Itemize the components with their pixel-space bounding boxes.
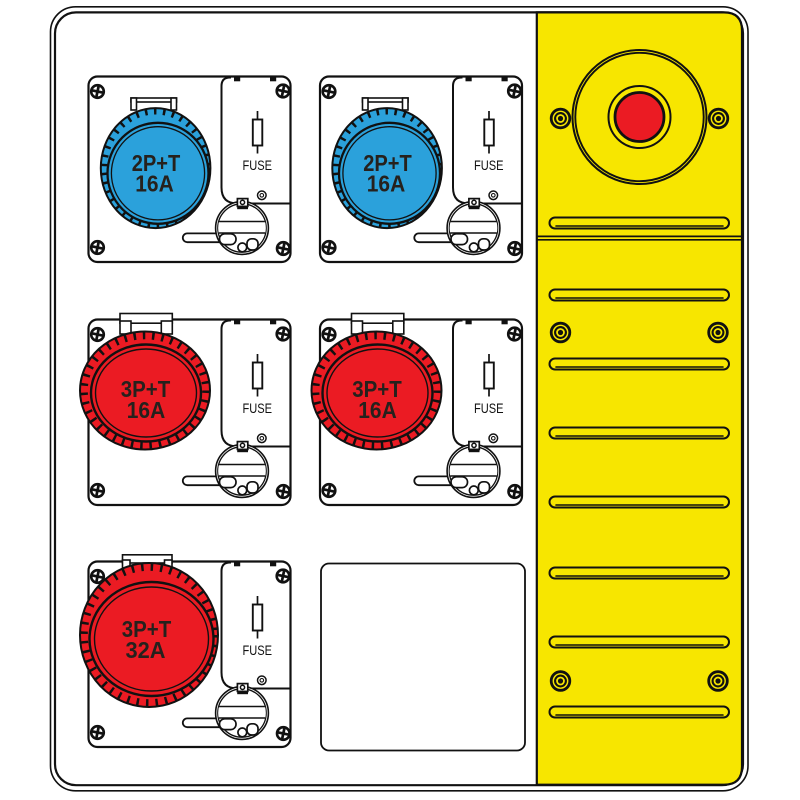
svg-text:16A: 16A [367,171,406,197]
svg-text:16A: 16A [127,397,166,423]
svg-text:32A: 32A [126,637,166,663]
svg-text:16A: 16A [358,397,397,423]
svg-text:16A: 16A [135,171,174,197]
